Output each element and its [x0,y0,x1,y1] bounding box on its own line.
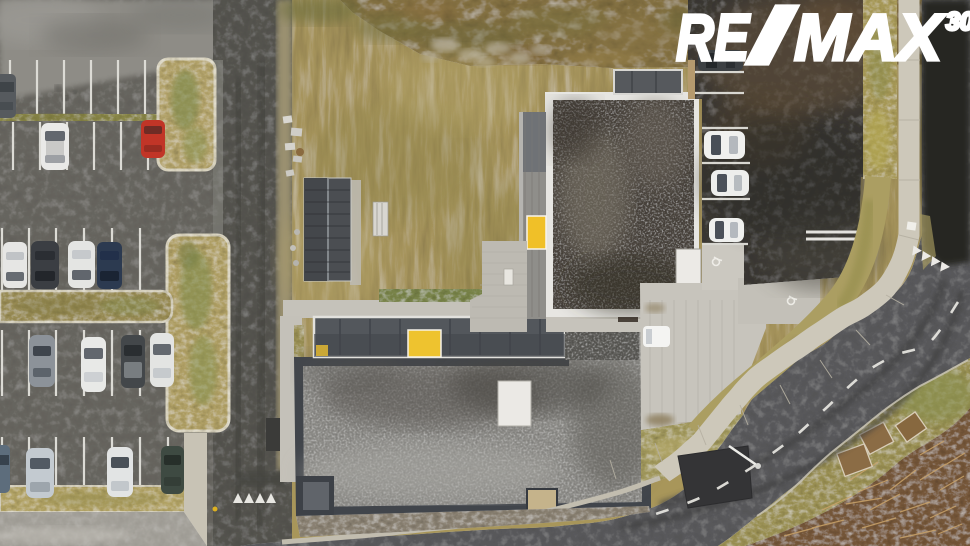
svg-text:RE: RE [676,0,751,74]
svg-text:MAX: MAX [794,0,946,74]
svg-text:30: 30 [946,8,970,36]
